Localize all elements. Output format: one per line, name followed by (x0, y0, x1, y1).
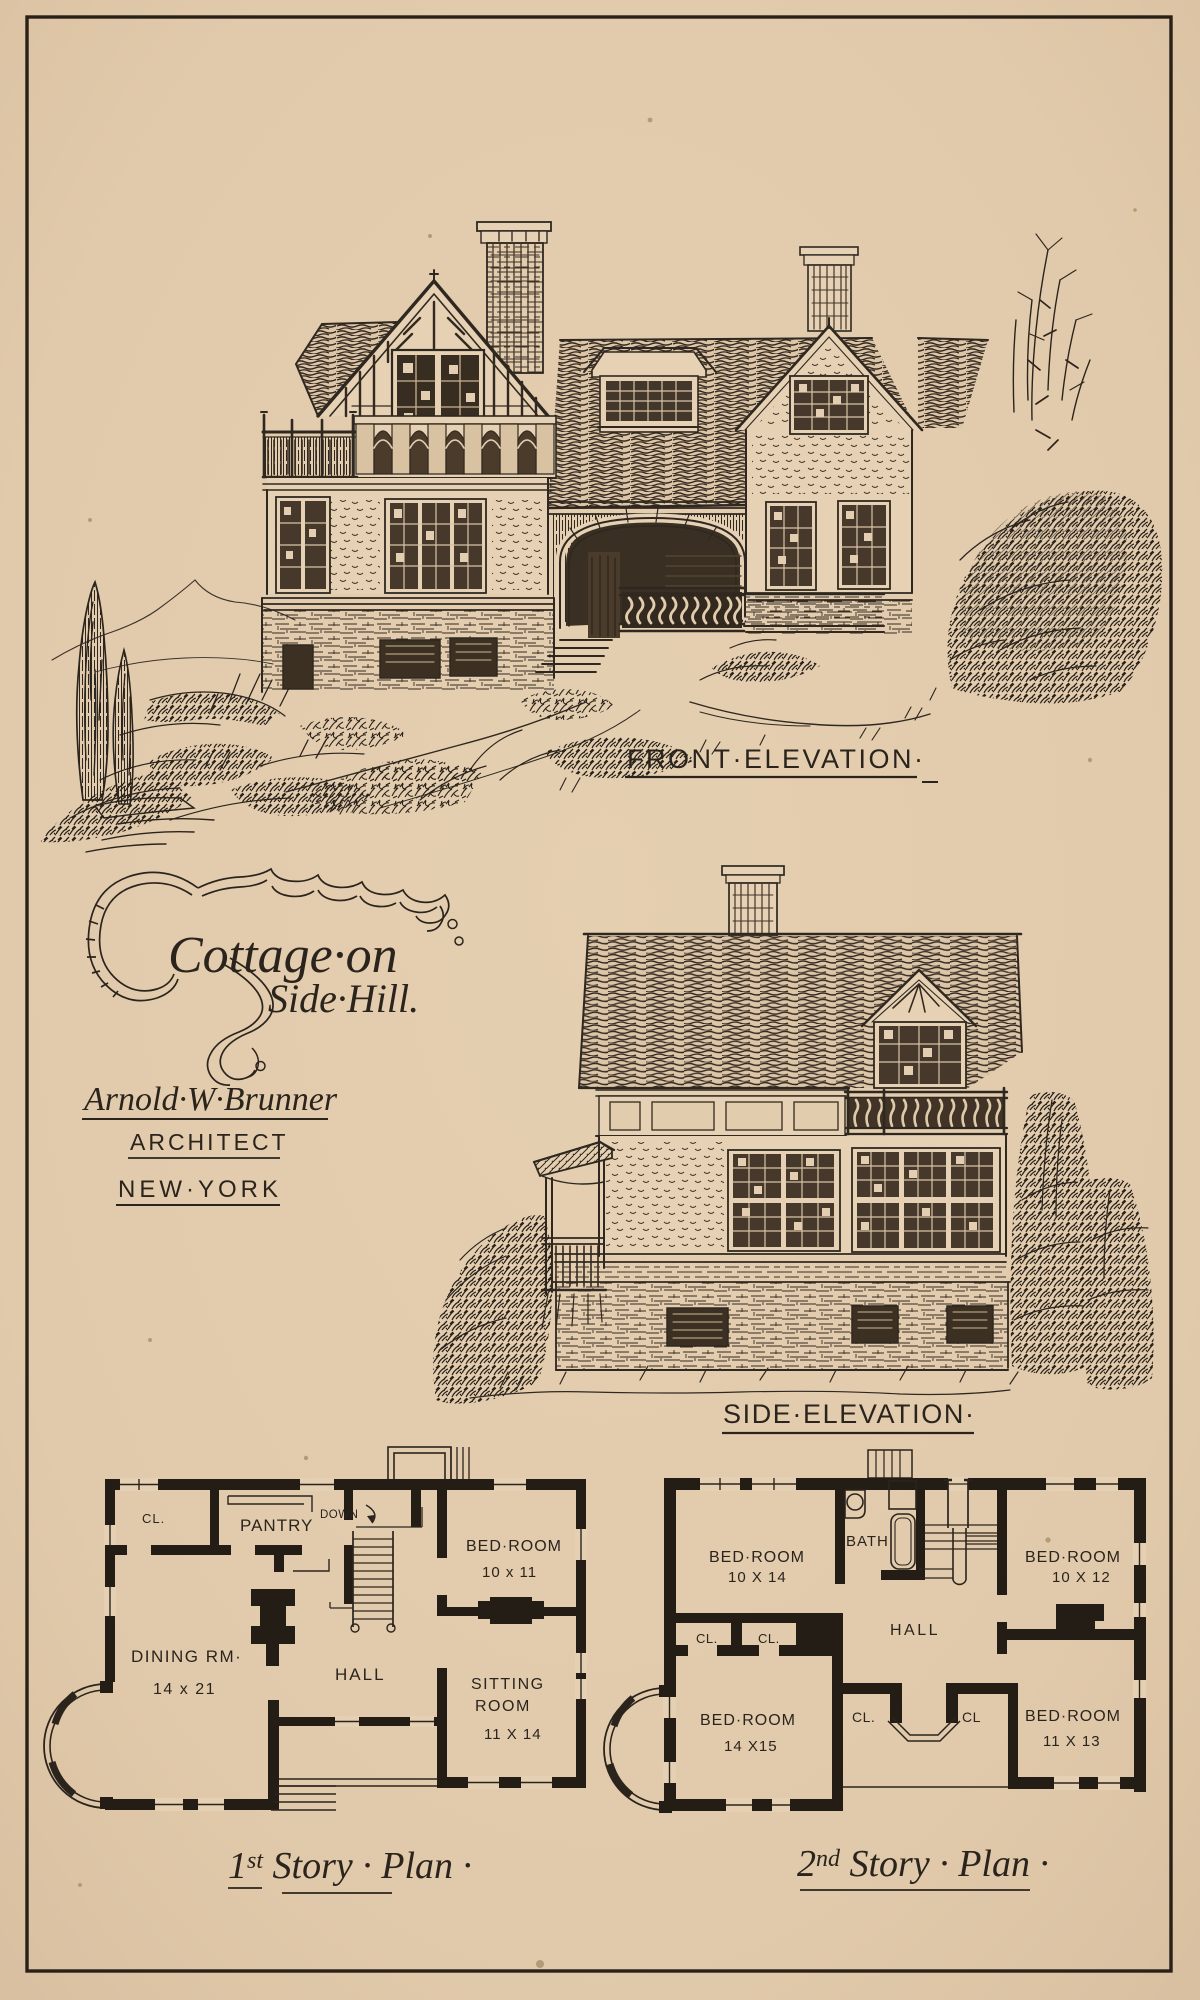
svg-text:CL.: CL. (758, 1631, 780, 1646)
svg-text:BED·ROOM: BED·ROOM (709, 1549, 805, 1566)
svg-text:14 x 21: 14 x 21 (153, 1681, 216, 1698)
svg-text:ARCHITECT: ARCHITECT (130, 1129, 289, 1155)
svg-text:BED·ROOM: BED·ROOM (1025, 1549, 1121, 1566)
svg-text:CL.: CL. (142, 1511, 165, 1526)
svg-text:BED·ROOM: BED·ROOM (466, 1538, 562, 1555)
svg-text:ROOM: ROOM (475, 1698, 531, 1715)
svg-text:14 X15: 14 X15 (724, 1738, 778, 1755)
svg-text:DOWN: DOWN (320, 1509, 358, 1521)
svg-text:10 X 12: 10 X 12 (1052, 1569, 1111, 1586)
svg-text:NEW·YORK: NEW·YORK (118, 1176, 282, 1203)
svg-text:CL.: CL. (696, 1631, 718, 1646)
svg-text:HALL: HALL (890, 1622, 940, 1639)
svg-text:DINING RM·: DINING RM· (131, 1647, 242, 1666)
svg-text:CL.: CL. (852, 1709, 875, 1725)
svg-text:CL: CL (962, 1709, 981, 1725)
svg-text:Side·Hill.: Side·Hill. (268, 976, 419, 1021)
svg-text:1st Story · Plan ·: 1st Story · Plan · (228, 1845, 472, 1887)
svg-text:SITTING: SITTING (471, 1676, 545, 1693)
svg-text:BED·ROOM: BED·ROOM (1025, 1708, 1121, 1725)
svg-text:HALL: HALL (335, 1665, 386, 1684)
svg-text:11 X 13: 11 X 13 (1043, 1733, 1101, 1750)
svg-text:PANTRY: PANTRY (240, 1516, 313, 1535)
svg-text:BED·ROOM: BED·ROOM (700, 1712, 796, 1729)
svg-text:SIDE·ELEVATION·: SIDE·ELEVATION· (723, 1399, 976, 1429)
svg-text:FRONT·ELEVATION·: FRONT·ELEVATION· (627, 744, 926, 774)
svg-text:10 X 14: 10 X 14 (728, 1569, 787, 1586)
svg-text:BATH: BATH (846, 1533, 889, 1550)
svg-text:10 x 11: 10 x 11 (482, 1564, 537, 1581)
svg-text:Arnold·W·Brunner: Arnold·W·Brunner (82, 1081, 338, 1118)
svg-text:11 X 14: 11 X 14 (484, 1726, 542, 1743)
